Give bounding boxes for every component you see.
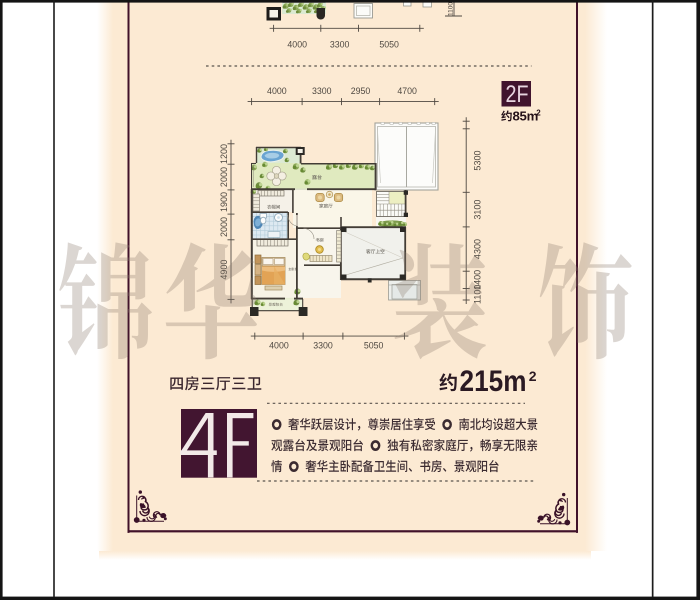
svg-text:5300: 5300 <box>473 151 483 171</box>
svg-text:4000: 4000 <box>287 40 307 50</box>
svg-text:1100: 1100 <box>448 2 455 16</box>
svg-text:4000: 4000 <box>267 86 287 96</box>
svg-text:1900: 1900 <box>219 192 229 212</box>
svg-text:3300: 3300 <box>330 40 350 50</box>
svg-text:1200: 1200 <box>219 144 229 164</box>
svg-text:2000: 2000 <box>219 167 229 187</box>
svg-text:215m: 215m <box>460 365 527 398</box>
svg-text:2950: 2950 <box>351 86 371 96</box>
svg-text:2: 2 <box>529 368 537 384</box>
svg-text:3300: 3300 <box>313 341 333 351</box>
svg-text:85m: 85m <box>513 108 539 123</box>
svg-text:2000: 2000 <box>219 217 229 237</box>
svg-text:5050: 5050 <box>364 341 384 351</box>
svg-text:3100: 3100 <box>473 200 483 220</box>
svg-text:4700: 4700 <box>397 86 417 96</box>
svg-text:2: 2 <box>536 109 541 118</box>
svg-text:5050: 5050 <box>379 40 399 50</box>
svg-text:4000: 4000 <box>269 341 289 351</box>
svg-text:2F: 2F <box>506 81 529 108</box>
svg-text:3300: 3300 <box>312 86 332 96</box>
